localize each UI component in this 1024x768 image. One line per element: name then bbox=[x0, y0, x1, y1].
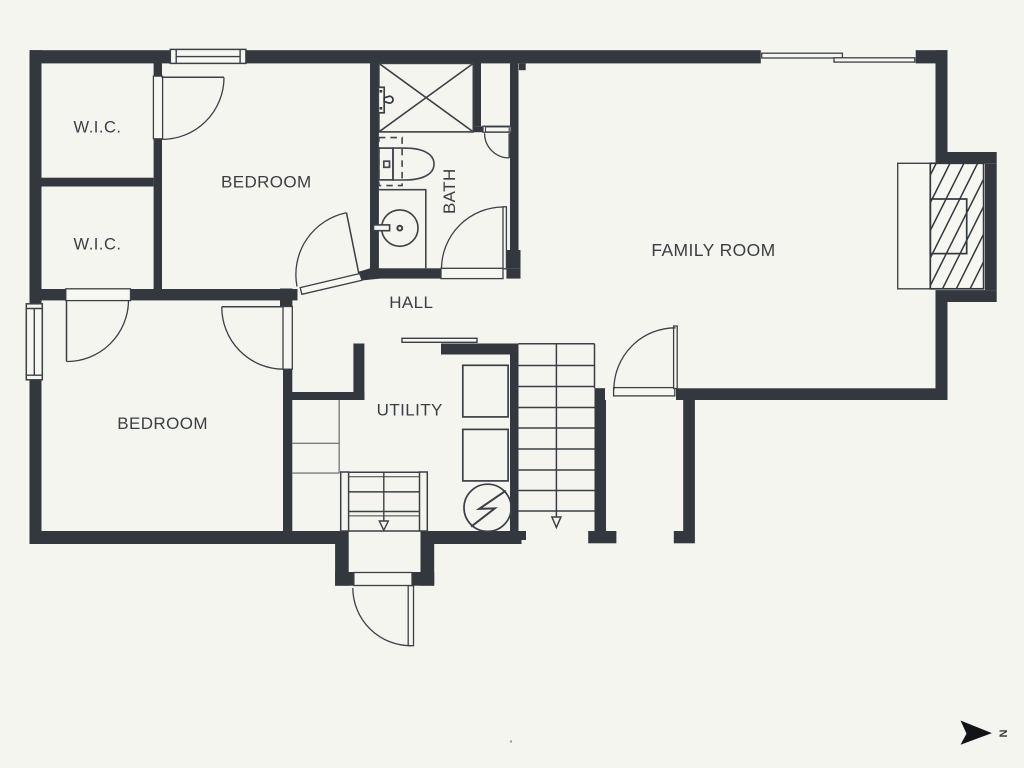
svg-text:BATH: BATH bbox=[440, 168, 459, 214]
svg-text:BEDROOM: BEDROOM bbox=[117, 414, 208, 433]
svg-text:W.I.C.: W.I.C. bbox=[74, 119, 122, 137]
svg-text:W.I.C.: W.I.C. bbox=[74, 236, 122, 254]
svg-text:BEDROOM: BEDROOM bbox=[221, 173, 312, 192]
svg-text:FAMILY ROOM: FAMILY ROOM bbox=[651, 240, 775, 260]
svg-text:HALL: HALL bbox=[389, 293, 433, 312]
svg-text:N: N bbox=[997, 730, 1009, 738]
svg-text:UTILITY: UTILITY bbox=[377, 400, 443, 419]
